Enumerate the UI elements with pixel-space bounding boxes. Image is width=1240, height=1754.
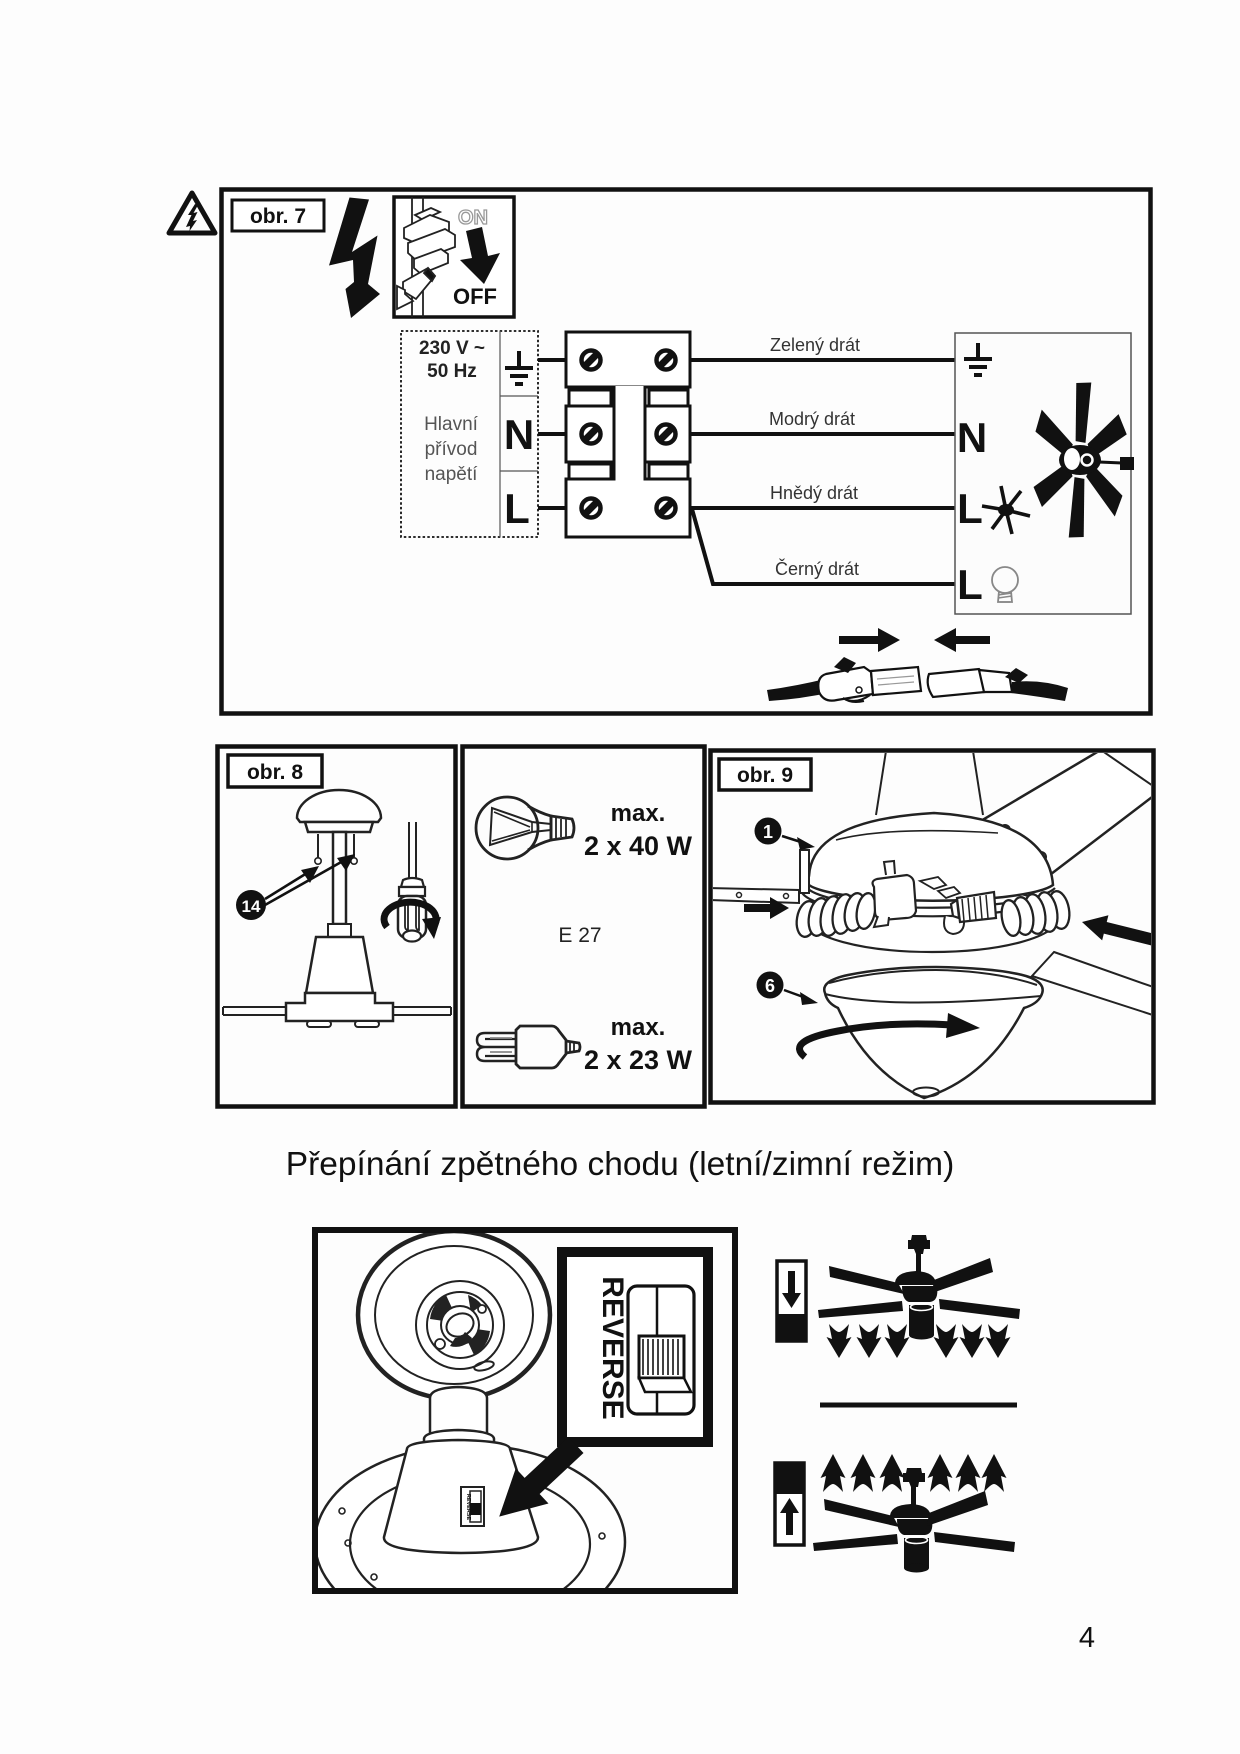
svg-text:ON: ON [458,207,488,229]
svg-text:L: L [504,485,530,532]
svg-text:L: L [957,561,983,608]
svg-text:N: N [504,411,534,458]
svg-text:2 x 40 W: 2 x 40 W [584,831,693,861]
svg-text:REVERSE: REVERSE [596,1276,629,1419]
svg-text:napětí: napětí [425,464,479,485]
svg-text:Černý drát: Černý drát [775,558,859,579]
svg-text:Hlavní: Hlavní [424,414,479,435]
svg-text:OFF: OFF [453,284,497,309]
svg-text:14: 14 [242,897,261,916]
svg-text:1: 1 [763,822,773,842]
svg-text:Modrý drát: Modrý drát [769,409,855,429]
svg-text:obr. 9: obr. 9 [737,764,793,787]
svg-text:REVERSE: REVERSE [465,1494,471,1521]
svg-text:6: 6 [765,976,775,996]
svg-text:obr. 7: obr. 7 [250,205,306,228]
svg-text:přívod: přívod [425,439,478,460]
svg-text:obr. 8: obr. 8 [247,761,303,784]
svg-text:max.: max. [611,800,666,827]
svg-text:Hnědý drát: Hnědý drát [770,483,858,503]
svg-text:50 Hz: 50 Hz [427,361,477,382]
svg-text:max.: max. [611,1014,666,1041]
svg-text:230 V ~: 230 V ~ [419,338,485,359]
svg-text:N: N [957,414,987,461]
svg-text:E 27: E 27 [558,924,601,947]
svg-text:L: L [957,485,983,532]
svg-text:2 x 23 W: 2 x 23 W [584,1045,693,1075]
svg-text:Zelený drát: Zelený drát [770,335,860,355]
